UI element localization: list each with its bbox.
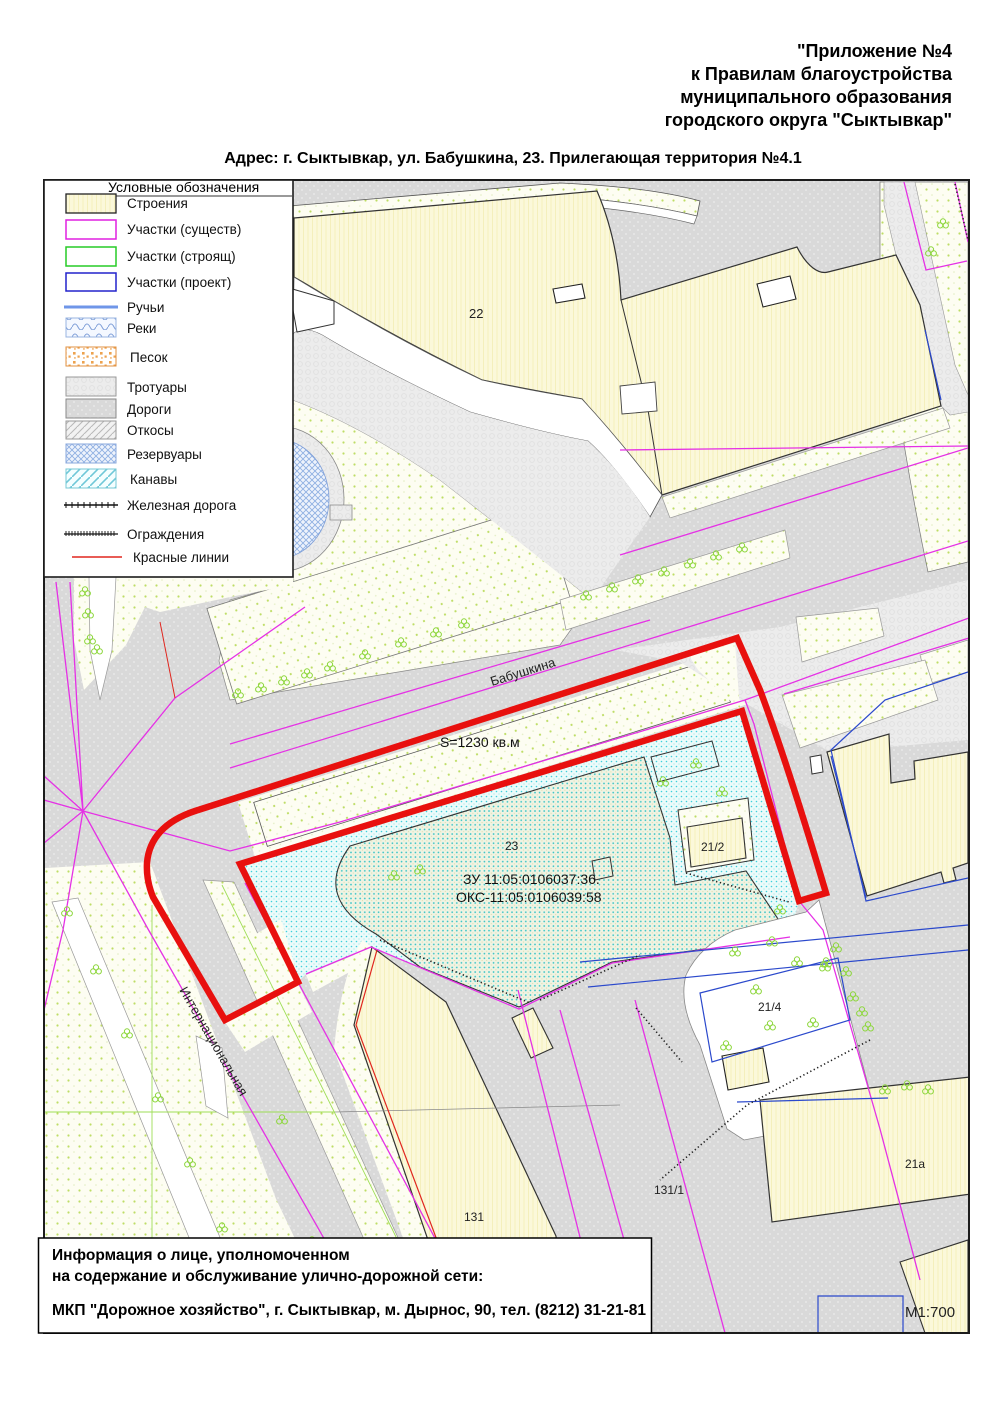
svg-text:Песок: Песок	[130, 350, 168, 365]
svg-text:Откосы: Откосы	[127, 423, 174, 438]
svg-text:Участки (проект): Участки (проект)	[127, 275, 231, 290]
svg-text:131: 131	[464, 1210, 484, 1224]
svg-text:Дороги: Дороги	[127, 402, 171, 417]
svg-text:М1:700: М1:700	[905, 1304, 955, 1321]
svg-text:Строения: Строения	[127, 196, 188, 211]
svg-text:Условные обозначения: Условные обозначения	[108, 179, 259, 195]
svg-text:Реки: Реки	[127, 321, 156, 336]
svg-text:S=1230 кв.м: S=1230 кв.м	[440, 734, 520, 750]
svg-text:ОКС-11:05:0106039:58: ОКС-11:05:0106039:58	[456, 889, 602, 905]
svg-text:Красные линии: Красные линии	[133, 550, 229, 565]
svg-text:ЗУ 11:05:0106037:36.: ЗУ 11:05:0106037:36.	[463, 871, 600, 887]
svg-text:Участки (строящ): Участки (строящ)	[127, 249, 236, 264]
svg-text:Участки (существ): Участки (существ)	[127, 222, 241, 237]
svg-text:131/1: 131/1	[654, 1183, 684, 1197]
svg-text:Канавы: Канавы	[130, 472, 177, 487]
svg-text:Информация о лице, уполномочен: Информация о лице, уполномоченном	[52, 1247, 350, 1264]
svg-text:21/2: 21/2	[701, 840, 725, 854]
svg-text:21/4: 21/4	[758, 1000, 782, 1014]
svg-text:23: 23	[505, 839, 519, 853]
svg-text:на содержание и обслуживание у: на содержание и обслуживание улично-доро…	[52, 1268, 483, 1285]
svg-text:22: 22	[469, 306, 483, 321]
svg-text:Ограждения: Ограждения	[127, 527, 204, 542]
svg-text:МКП "Дорожное хозяйство", г. С: МКП "Дорожное хозяйство", г. Сыктывкар, …	[52, 1302, 646, 1319]
svg-text:Ручьи: Ручьи	[127, 300, 164, 315]
svg-text:21а: 21а	[905, 1157, 925, 1171]
svg-text:Тротуары: Тротуары	[127, 380, 187, 395]
svg-text:Железная дорога: Железная дорога	[127, 498, 237, 513]
svg-text:Резервуары: Резервуары	[127, 447, 202, 462]
